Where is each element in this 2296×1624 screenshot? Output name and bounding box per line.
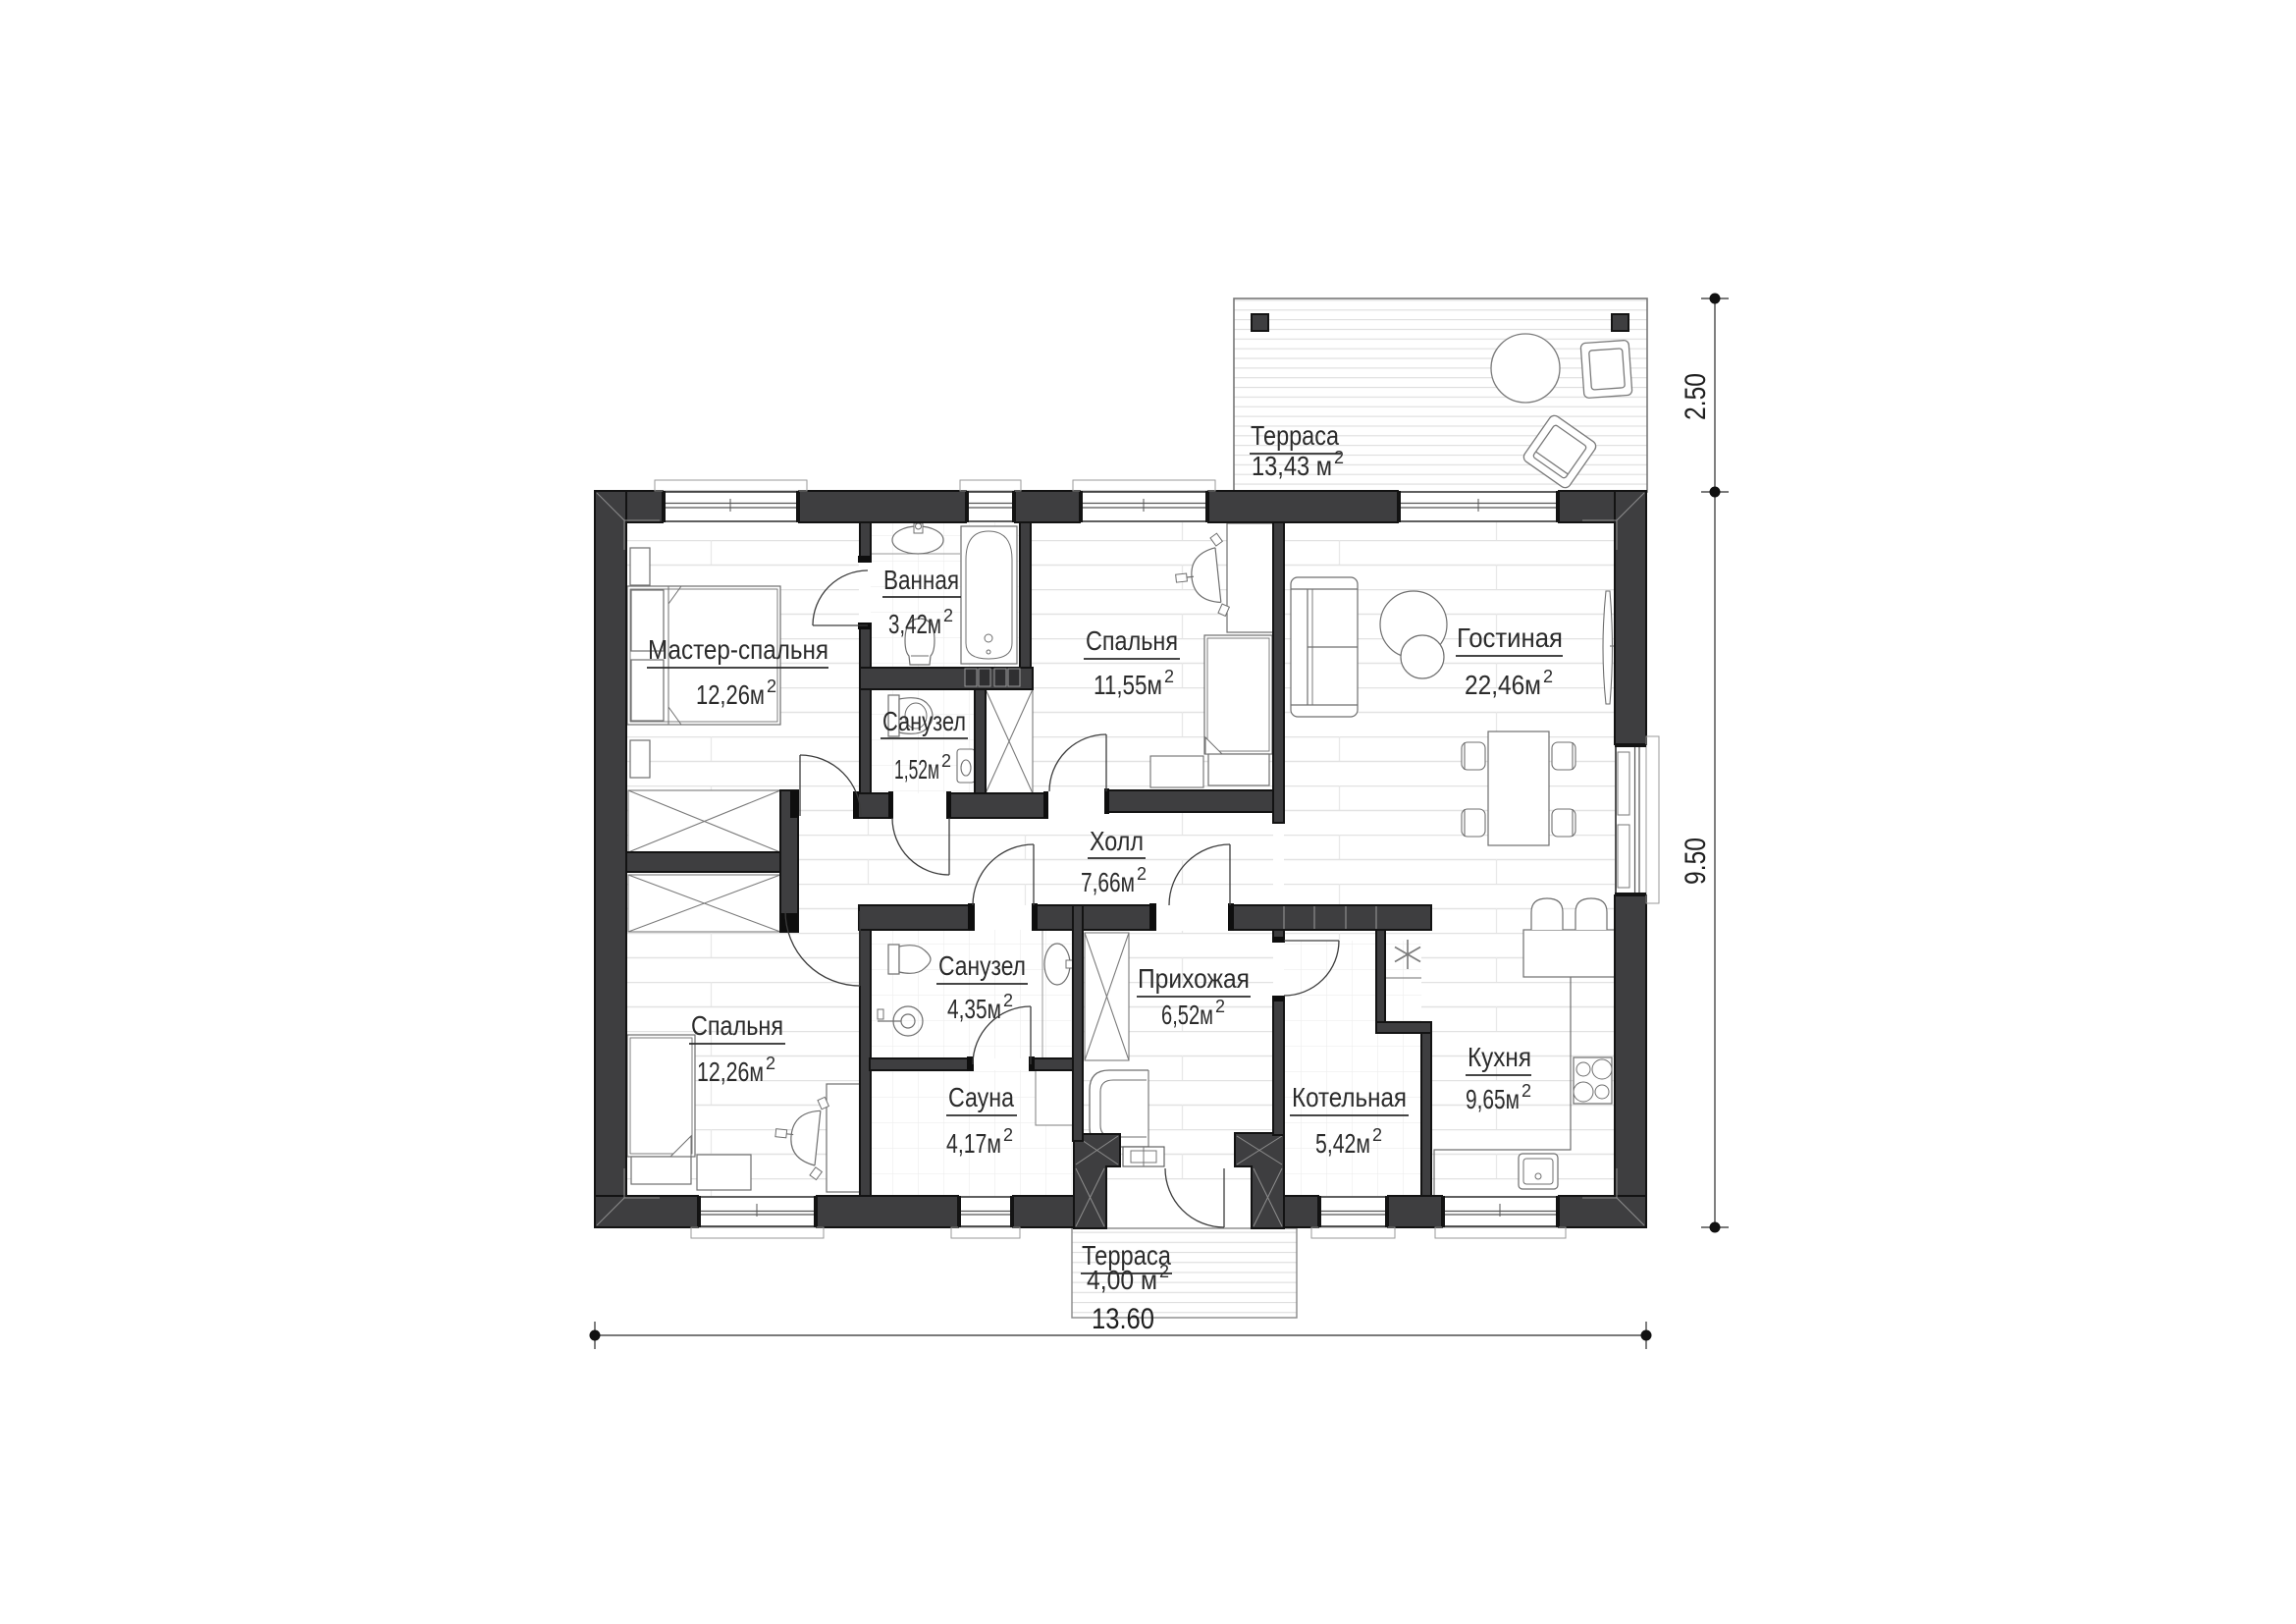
svg-text:2: 2: [941, 751, 951, 771]
svg-text:Сауна: Сауна: [948, 1082, 1014, 1112]
svg-text:2: 2: [1215, 997, 1225, 1016]
svg-text:2.50: 2.50: [1680, 373, 1712, 420]
svg-text:Спальня: Спальня: [1086, 625, 1178, 656]
svg-text:2: 2: [1159, 1262, 1169, 1281]
svg-text:Терраса: Терраса: [1251, 420, 1339, 451]
svg-text:3,42м: 3,42м: [888, 609, 941, 639]
svg-text:Ванная: Ванная: [883, 565, 959, 595]
svg-text:5,42м: 5,42м: [1315, 1128, 1370, 1159]
svg-text:Спальня: Спальня: [691, 1010, 783, 1041]
svg-text:Котельная: Котельная: [1292, 1082, 1407, 1112]
svg-text:12,26м: 12,26м: [697, 1056, 764, 1087]
svg-text:4,35м: 4,35м: [947, 994, 1001, 1024]
svg-text:2: 2: [1164, 667, 1174, 686]
svg-text:9,65м: 9,65м: [1466, 1084, 1520, 1114]
svg-text:2: 2: [1543, 667, 1553, 686]
svg-text:4,17м: 4,17м: [946, 1128, 1001, 1159]
svg-text:Холл: Холл: [1090, 826, 1144, 856]
svg-text:22,46м: 22,46м: [1465, 670, 1541, 700]
svg-text:2: 2: [1522, 1081, 1531, 1101]
svg-text:12,26м: 12,26м: [696, 679, 765, 710]
svg-text:1,52м: 1,52м: [894, 754, 939, 785]
svg-text:Санузел: Санузел: [938, 950, 1026, 981]
svg-text:2: 2: [766, 1054, 775, 1073]
svg-text:Прихожая: Прихожая: [1138, 963, 1250, 994]
svg-text:Кухня: Кухня: [1468, 1042, 1531, 1072]
svg-text:2: 2: [1003, 1125, 1013, 1145]
svg-text:2: 2: [1334, 448, 1344, 467]
svg-text:Санузел: Санузел: [882, 706, 966, 736]
svg-text:7,66м: 7,66м: [1081, 867, 1135, 897]
svg-text:Мастер-спальня: Мастер-спальня: [648, 634, 828, 665]
svg-text:6,52м: 6,52м: [1161, 1000, 1213, 1030]
svg-text:13,43 м: 13,43 м: [1252, 451, 1332, 481]
svg-text:2: 2: [1003, 991, 1013, 1010]
svg-text:Гостиная: Гостиная: [1457, 623, 1563, 653]
svg-text:4,00 м: 4,00 м: [1087, 1265, 1157, 1295]
svg-text:2: 2: [1372, 1125, 1382, 1145]
svg-text:2: 2: [1137, 864, 1147, 884]
svg-text:2: 2: [943, 606, 953, 625]
svg-text:13.60: 13.60: [1092, 1303, 1154, 1335]
svg-text:11,55м: 11,55м: [1094, 670, 1162, 700]
svg-text:9.50: 9.50: [1680, 838, 1712, 885]
svg-text:2: 2: [767, 677, 776, 696]
